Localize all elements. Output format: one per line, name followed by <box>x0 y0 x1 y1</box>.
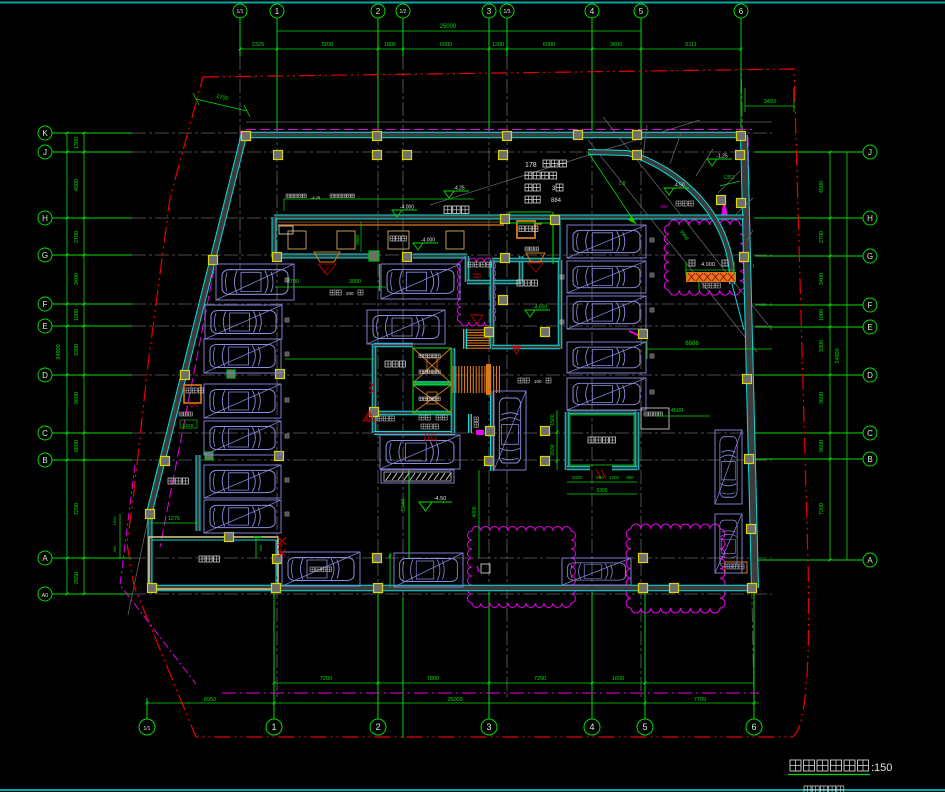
svg-text:H: H <box>867 214 873 223</box>
svg-text:3400: 3400 <box>74 273 80 285</box>
svg-text:1806: 1806 <box>384 42 396 48</box>
svg-text:1/2: 1/2 <box>400 9 407 15</box>
svg-text:1/3: 1/3 <box>504 9 511 15</box>
svg-text:4500: 4500 <box>671 408 683 414</box>
svg-text:3600: 3600 <box>610 42 622 48</box>
svg-text:7200: 7200 <box>321 42 333 48</box>
svg-text:1350: 1350 <box>74 137 80 149</box>
svg-text:1000: 1000 <box>819 309 825 321</box>
svg-text:3300: 3300 <box>74 344 80 356</box>
svg-text:600: 600 <box>596 475 604 480</box>
svg-text:-4.25: -4.25 <box>311 195 321 200</box>
svg-text:3: 3 <box>487 7 492 16</box>
svg-text:884: 884 <box>551 198 562 204</box>
svg-text:3000: 3000 <box>349 279 361 285</box>
svg-text:2630: 2630 <box>550 444 556 455</box>
svg-text:25000: 25000 <box>440 24 457 30</box>
svg-text:2850: 2850 <box>355 234 360 245</box>
svg-text:A: A <box>867 556 873 565</box>
svg-text:7200: 7200 <box>534 676 546 682</box>
svg-text:4: 4 <box>589 722 594 732</box>
svg-text:-4.25: -4.25 <box>453 186 465 192</box>
svg-text:1/1: 1/1 <box>237 9 244 15</box>
svg-text:1276: 1276 <box>168 516 180 522</box>
svg-text:F: F <box>868 301 873 310</box>
svg-text:7200: 7200 <box>819 503 825 515</box>
svg-text:E: E <box>867 323 872 332</box>
svg-text:2700: 2700 <box>287 279 299 285</box>
svg-text:2: 2 <box>375 722 380 732</box>
svg-text:178: 178 <box>525 162 537 169</box>
svg-text:7200: 7200 <box>74 503 80 515</box>
svg-text:2: 2 <box>376 7 381 16</box>
svg-text:6886: 6886 <box>685 341 699 347</box>
svg-text:D: D <box>867 371 873 380</box>
svg-text:1351: 1351 <box>723 175 734 181</box>
svg-text:8600: 8600 <box>74 440 80 452</box>
svg-text:300: 300 <box>660 204 668 209</box>
svg-text:-4.000: -4.000 <box>400 205 414 211</box>
svg-text:5944: 5944 <box>401 499 407 511</box>
svg-text:4500: 4500 <box>74 179 80 191</box>
svg-text:4000: 4000 <box>472 506 478 517</box>
svg-text:1: 1 <box>271 722 276 732</box>
svg-text:H: H <box>42 214 48 223</box>
svg-text:200: 200 <box>346 291 354 296</box>
svg-text:3300: 3300 <box>819 340 825 352</box>
svg-text:4.000: 4.000 <box>701 262 715 268</box>
svg-text:7709: 7709 <box>694 697 706 703</box>
svg-text:8950: 8950 <box>204 697 216 703</box>
svg-text:J: J <box>43 148 47 157</box>
svg-text:-4.000: -4.000 <box>533 305 547 311</box>
svg-text:2700: 2700 <box>819 231 825 243</box>
svg-text:2000: 2000 <box>572 475 583 480</box>
svg-text:800: 800 <box>258 544 263 551</box>
svg-text:-4.50: -4.50 <box>673 183 685 189</box>
svg-text:G: G <box>867 252 873 261</box>
svg-text:6111: 6111 <box>685 42 696 48</box>
svg-text:6000: 6000 <box>543 42 555 48</box>
svg-text:24600: 24600 <box>835 348 841 363</box>
svg-text:900: 900 <box>626 475 634 480</box>
svg-text:100: 100 <box>534 379 542 384</box>
svg-text:G: G <box>42 251 48 260</box>
svg-text:1: 1 <box>275 7 280 16</box>
svg-text:900: 900 <box>112 545 117 552</box>
svg-text:-4.000: -4.000 <box>421 238 435 244</box>
svg-text:C: C <box>867 429 873 438</box>
svg-text:2329: 2329 <box>252 42 264 48</box>
svg-text:24600: 24600 <box>56 344 62 359</box>
svg-text:B: B <box>42 456 47 465</box>
svg-text:7200: 7200 <box>320 676 332 682</box>
svg-text:5300: 5300 <box>596 488 607 494</box>
svg-text:A0: A0 <box>42 593 49 599</box>
svg-text:-4.50: -4.50 <box>434 496 447 502</box>
svg-text:9600: 9600 <box>819 440 825 452</box>
svg-text:5: 5 <box>639 7 644 16</box>
svg-text:1500: 1500 <box>550 414 556 425</box>
svg-text:C: C <box>42 429 48 438</box>
svg-text:3400: 3400 <box>819 273 825 285</box>
svg-text:B: B <box>867 455 872 464</box>
svg-text:6: 6 <box>739 7 744 16</box>
svg-text:K: K <box>42 129 48 138</box>
svg-text:4500: 4500 <box>819 181 825 193</box>
svg-text:1/1: 1/1 <box>144 726 151 732</box>
svg-text:1200: 1200 <box>492 42 504 48</box>
svg-text:J: J <box>868 148 872 157</box>
svg-text:6: 6 <box>751 722 756 732</box>
svg-text::150: :150 <box>871 762 892 774</box>
svg-text:9600: 9600 <box>74 392 80 404</box>
svg-text:5: 5 <box>642 722 647 732</box>
svg-text:3600: 3600 <box>819 392 825 404</box>
svg-text:6000: 6000 <box>440 42 452 48</box>
svg-text:3: 3 <box>486 722 491 732</box>
svg-text:F: F <box>43 300 48 309</box>
svg-text:1000: 1000 <box>74 309 80 321</box>
svg-text:4: 4 <box>590 7 595 16</box>
svg-text:1650: 1650 <box>112 516 117 526</box>
svg-text:7800: 7800 <box>427 676 439 682</box>
svg-text:1200: 1200 <box>609 475 620 480</box>
svg-text:2650: 2650 <box>74 572 80 584</box>
svg-text:1600: 1600 <box>612 676 624 682</box>
svg-text:2700: 2700 <box>74 231 80 243</box>
svg-text:1:8: 1:8 <box>619 181 626 187</box>
svg-text:A: A <box>42 554 48 563</box>
svg-text:3493: 3493 <box>764 99 776 105</box>
svg-text:E: E <box>42 322 47 331</box>
svg-text:25000: 25000 <box>447 697 462 703</box>
svg-text:1029: 1029 <box>183 423 194 428</box>
svg-text:-1.25: -1.25 <box>716 154 728 160</box>
svg-text:D: D <box>42 371 48 380</box>
